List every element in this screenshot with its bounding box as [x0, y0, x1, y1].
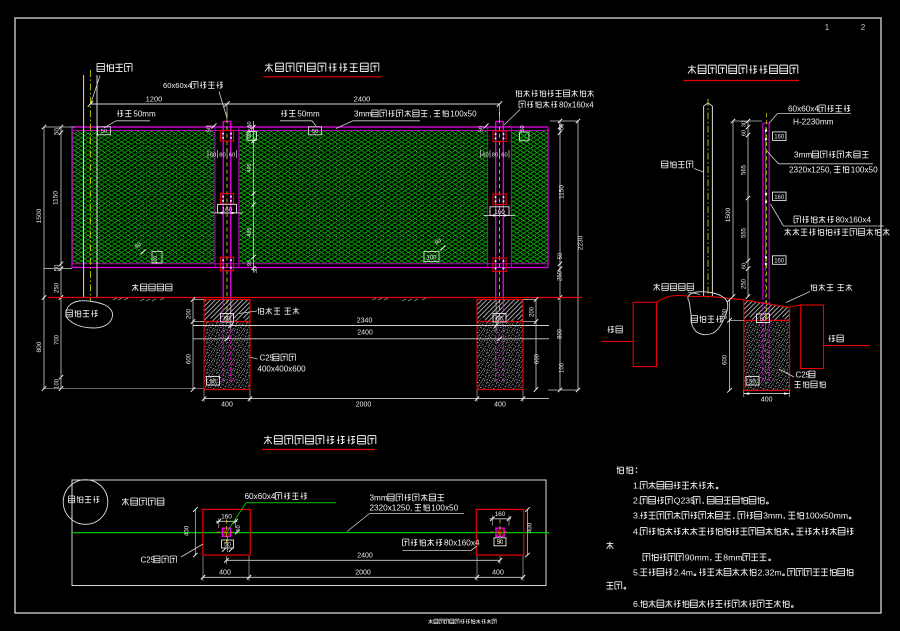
svg-text:250: 250	[742, 278, 748, 289]
svg-text:3mm: 3mm	[370, 494, 388, 503]
svg-text:2000: 2000	[355, 570, 371, 577]
svg-text:1200: 1200	[146, 95, 163, 104]
svg-text:100x50: 100x50	[851, 165, 878, 174]
svg-text:800: 800	[558, 328, 564, 339]
svg-text:2400: 2400	[357, 330, 373, 337]
svg-text:200: 200	[530, 306, 536, 317]
svg-text:400: 400	[219, 570, 231, 577]
svg-text:250: 250	[55, 282, 61, 293]
svg-text:2340: 2340	[357, 318, 373, 325]
svg-text:50: 50	[247, 121, 253, 127]
svg-text:1: 1	[825, 23, 830, 32]
svg-text:600: 600	[723, 354, 729, 365]
svg-text:2320x1250,: 2320x1250,	[789, 165, 832, 174]
svg-text:30: 30	[742, 121, 748, 127]
svg-text:50: 50	[520, 125, 526, 131]
svg-text:60: 60	[210, 153, 216, 159]
svg-text:200: 200	[723, 308, 729, 319]
svg-text:6.: 6.	[633, 599, 640, 609]
svg-text:1.: 1.	[633, 481, 640, 491]
svg-text:50: 50	[560, 123, 566, 130]
svg-text:160: 160	[774, 195, 785, 201]
svg-text:2.: 2.	[633, 496, 640, 506]
svg-text:3mm: 3mm	[354, 109, 372, 118]
svg-text:95: 95	[247, 260, 253, 266]
svg-text:100x50: 100x50	[450, 109, 477, 118]
svg-text:400: 400	[761, 396, 773, 403]
svg-text:50: 50	[224, 542, 231, 548]
svg-text:400: 400	[492, 570, 504, 577]
svg-text:95: 95	[247, 132, 253, 138]
svg-text:800: 800	[36, 341, 43, 352]
svg-text:160: 160	[221, 513, 232, 520]
svg-text:400x400x600: 400x400x600	[258, 364, 307, 373]
svg-text:50: 50	[101, 129, 107, 135]
svg-text:3.: 3.	[633, 511, 640, 521]
svg-text:250: 250	[558, 270, 564, 281]
svg-text:495: 495	[247, 163, 253, 172]
svg-text:400: 400	[184, 525, 191, 536]
svg-text:1150: 1150	[53, 191, 60, 205]
svg-text:50: 50	[55, 128, 61, 135]
svg-text:60: 60	[501, 153, 507, 159]
svg-text:600: 600	[187, 353, 193, 364]
svg-text:100: 100	[55, 378, 61, 389]
svg-text:565: 565	[742, 164, 748, 175]
svg-text:1500: 1500	[725, 207, 732, 222]
svg-text:50mm: 50mm	[133, 109, 156, 118]
svg-text:80x160x4: 80x160x4	[836, 216, 872, 225]
svg-text:4.: 4.	[633, 527, 640, 537]
svg-text:60: 60	[742, 130, 748, 136]
svg-text:2.32m: 2.32m	[758, 567, 782, 577]
svg-text:3mm: 3mm	[763, 511, 782, 521]
svg-text:200: 200	[187, 308, 193, 319]
svg-text:100x50mm: 100x50mm	[805, 511, 848, 521]
svg-text:5.: 5.	[633, 567, 640, 577]
svg-text:555: 555	[742, 227, 748, 238]
svg-text:400: 400	[221, 401, 233, 408]
svg-text:90mm: 90mm	[685, 552, 709, 562]
svg-text:600: 600	[535, 353, 541, 364]
svg-text:80x160x4: 80x160x4	[559, 100, 594, 109]
svg-text:,: ,	[429, 109, 431, 118]
svg-text:160: 160	[495, 511, 506, 518]
svg-text:3mm: 3mm	[794, 151, 812, 160]
svg-text:50: 50	[55, 264, 61, 271]
svg-text:700: 700	[55, 334, 61, 345]
svg-text:60x60x4: 60x60x4	[788, 105, 819, 114]
svg-text:80: 80	[492, 153, 498, 159]
svg-text:400: 400	[494, 401, 506, 408]
svg-text:2230: 2230	[578, 235, 585, 250]
svg-text:160: 160	[774, 135, 785, 141]
svg-text:60: 60	[229, 153, 235, 159]
svg-text:80: 80	[219, 153, 225, 159]
svg-text:50: 50	[558, 252, 564, 259]
svg-text:80x160x4: 80x160x4	[444, 539, 480, 548]
svg-text:100: 100	[426, 255, 437, 261]
svg-text:60x60x4: 60x60x4	[245, 492, 276, 501]
svg-text:100: 100	[560, 362, 566, 373]
svg-text:60: 60	[496, 316, 503, 322]
svg-text:8mm: 8mm	[723, 552, 742, 562]
svg-text:30: 30	[253, 267, 259, 273]
svg-text:160: 160	[494, 209, 505, 216]
svg-text:60x60x4: 60x60x4	[163, 81, 192, 90]
svg-text:100x50: 100x50	[431, 504, 458, 513]
svg-text:2320x1250,: 2320x1250,	[370, 504, 413, 513]
svg-text:495: 495	[247, 227, 253, 236]
svg-text:2000: 2000	[356, 401, 372, 408]
svg-text:50: 50	[312, 129, 318, 135]
svg-text:50: 50	[210, 379, 217, 385]
svg-text:50: 50	[497, 540, 504, 546]
svg-text:2: 2	[861, 23, 866, 32]
svg-text:50mm: 50mm	[297, 109, 320, 118]
svg-text:1500: 1500	[36, 208, 43, 223]
svg-text:2400: 2400	[357, 553, 373, 560]
svg-text:2.4m: 2.4m	[674, 567, 693, 577]
svg-text:H-2230mm: H-2230mm	[793, 118, 834, 127]
svg-text:50: 50	[479, 126, 485, 132]
svg-text:60: 60	[742, 263, 748, 269]
svg-text:100: 100	[153, 256, 159, 265]
svg-text:50: 50	[207, 126, 213, 132]
svg-text:60: 60	[760, 317, 767, 323]
svg-text:2400: 2400	[354, 95, 371, 104]
svg-text:1150: 1150	[559, 185, 566, 199]
svg-text:60: 60	[482, 153, 488, 159]
svg-text:160: 160	[774, 259, 785, 265]
svg-text:Q235: Q235	[674, 496, 695, 506]
svg-text:50: 50	[749, 379, 756, 385]
svg-text:160: 160	[222, 206, 233, 213]
svg-text:60: 60	[224, 316, 231, 322]
